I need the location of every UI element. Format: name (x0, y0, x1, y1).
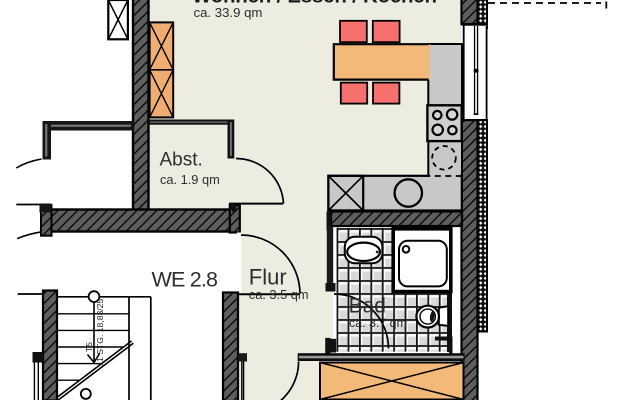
svg-text:Flur: Flur (249, 264, 287, 289)
svg-text:11 STG. 18,83/25: 11 STG. 18,83/25 (95, 299, 105, 366)
svg-text:ca. 1.9 qm: ca. 1.9 qm (160, 172, 220, 187)
svg-text:T5: T5 (84, 342, 94, 352)
svg-text:Abst.: Abst. (160, 150, 203, 171)
svg-text:ca. 3.5 qm: ca. 3.5 qm (249, 287, 309, 302)
svg-text:Bad: Bad (349, 294, 386, 317)
svg-text:WE 2.8: WE 2.8 (152, 268, 219, 292)
svg-text:ca. 3.7 qm: ca. 3.7 qm (349, 316, 407, 330)
svg-text:ca. 33.9 qm: ca. 33.9 qm (194, 5, 263, 20)
